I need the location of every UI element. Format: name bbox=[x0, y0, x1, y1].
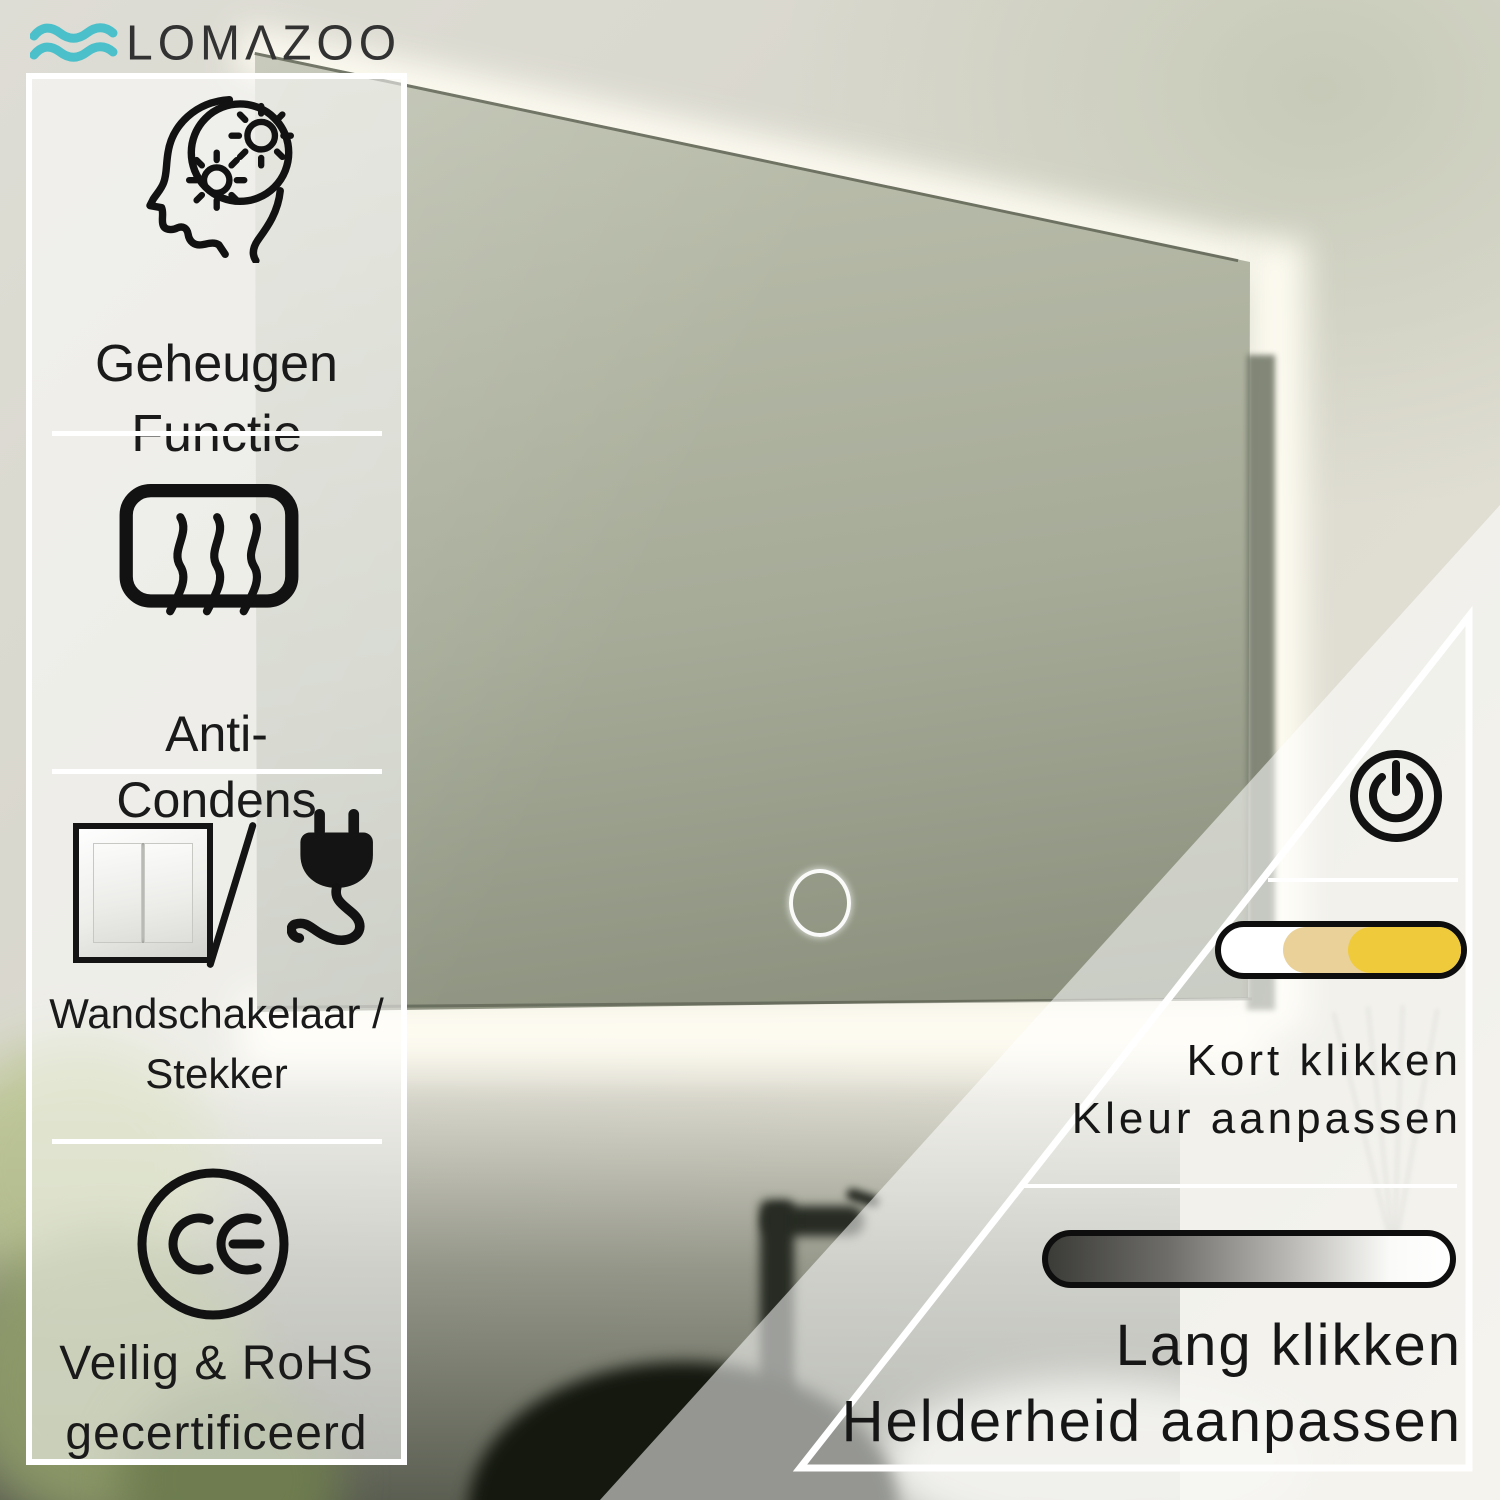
short-click-line1: Kort klikken bbox=[900, 1032, 1462, 1090]
short-click-line2: Kleur aanpassen bbox=[900, 1090, 1462, 1148]
feature-label-switch: Wandschakelaar / Stekker bbox=[32, 984, 401, 1104]
slash-separator bbox=[206, 821, 257, 968]
features-panel: Geheugen Functie Anti- Condens bbox=[26, 73, 407, 1465]
panel-divider bbox=[1020, 1184, 1457, 1188]
feature-anticondens-line1: Anti- bbox=[32, 701, 401, 767]
long-click-instruction: Lang klikken Helderheid aanpassen bbox=[640, 1308, 1462, 1460]
power-plug-icon bbox=[287, 809, 397, 969]
logo-waves-icon bbox=[30, 22, 118, 66]
feature-label-memory: Geheugen Functie bbox=[32, 329, 401, 469]
color-temperature-slider bbox=[1215, 921, 1467, 979]
feature-switch-line2: Stekker bbox=[32, 1044, 401, 1104]
feature-memory-line1: Geheugen bbox=[32, 329, 401, 399]
brand-name: LOMΛZOO bbox=[126, 15, 401, 71]
feature-certified-line2: gecertificeerd bbox=[32, 1399, 401, 1469]
wall-switch-icon bbox=[73, 823, 213, 963]
memory-head-gears-icon bbox=[132, 91, 312, 263]
power-icon bbox=[1346, 746, 1446, 846]
brand-logo: LOMΛZOO bbox=[30, 16, 401, 71]
feature-switch-line1: Wandschakelaar / bbox=[32, 984, 401, 1044]
feature-label-certified: Veilig & RoHS gecertificeerd bbox=[32, 1329, 401, 1469]
product-infographic: Kort klikken Kleur aanpassen Lang klikke… bbox=[0, 0, 1500, 1500]
panel-divider bbox=[52, 1139, 382, 1144]
panel-divider bbox=[1268, 878, 1458, 882]
color-slider-yellow-segment bbox=[1348, 927, 1467, 973]
anti-condensation-icon bbox=[117, 464, 301, 646]
short-click-instruction: Kort klikken Kleur aanpassen bbox=[900, 1032, 1462, 1148]
ce-certified-icon bbox=[133, 1164, 293, 1324]
brightness-slider bbox=[1042, 1230, 1456, 1288]
long-click-line2: Helderheid aanpassen bbox=[640, 1384, 1462, 1460]
switch-rocker bbox=[93, 843, 142, 943]
switch-rocker bbox=[144, 843, 193, 943]
feature-certified-line1: Veilig & RoHS bbox=[32, 1329, 401, 1399]
panel-divider bbox=[52, 769, 382, 774]
panel-divider bbox=[52, 431, 382, 436]
long-click-line1: Lang klikken bbox=[640, 1308, 1462, 1384]
